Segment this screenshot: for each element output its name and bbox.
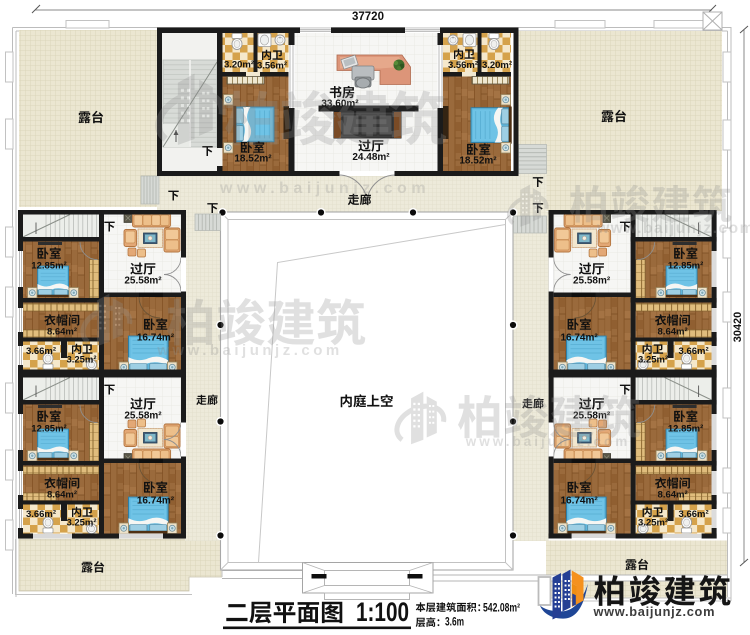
svg-text:542.08m²: 542.08m² xyxy=(483,603,520,615)
svg-text:18.52m²: 18.52m² xyxy=(234,154,272,165)
svg-text:25.58m²: 25.58m² xyxy=(124,276,162,287)
svg-text:18.52m²: 18.52m² xyxy=(459,156,497,167)
svg-text:3.25m²: 3.25m² xyxy=(638,518,668,529)
svg-text:37720: 37720 xyxy=(352,11,384,23)
svg-text:3.20m²: 3.20m² xyxy=(224,60,254,71)
svg-text:www.baijunjz.com: www.baijunjz.com xyxy=(465,434,631,449)
svg-text:3.66m²: 3.66m² xyxy=(26,346,56,357)
svg-text:3.25m²: 3.25m² xyxy=(66,518,96,529)
svg-text:12.85m²: 12.85m² xyxy=(668,261,703,272)
svg-text:www.baijunjz.com: www.baijunjz.com xyxy=(596,220,750,237)
svg-text:3.66m²: 3.66m² xyxy=(679,346,709,357)
svg-text:12.85m²: 12.85m² xyxy=(31,261,66,272)
svg-text:3.56m²: 3.56m² xyxy=(448,60,478,71)
svg-text:12.85m²: 12.85m² xyxy=(668,424,703,435)
svg-text:www.baijunjz.com: www.baijunjz.com xyxy=(219,180,430,197)
svg-text:24.48m²: 24.48m² xyxy=(352,152,390,163)
svg-text:3.25m²: 3.25m² xyxy=(638,355,668,366)
svg-text:3.20m²: 3.20m² xyxy=(482,60,512,71)
svg-text:www.baijunjz.com: www.baijunjz.com xyxy=(156,342,342,359)
svg-text:12.85m²: 12.85m² xyxy=(31,424,66,435)
svg-text:www.baijunjz.com: www.baijunjz.com xyxy=(593,604,716,619)
svg-text:3.66m²: 3.66m² xyxy=(26,509,56,520)
svg-text:3.25m²: 3.25m² xyxy=(66,355,96,366)
svg-text:16.74m²: 16.74m² xyxy=(560,496,598,507)
svg-text:16.74m²: 16.74m² xyxy=(137,496,175,507)
svg-text:1:100: 1:100 xyxy=(356,597,409,627)
svg-text:30420: 30420 xyxy=(732,312,744,343)
svg-text:16.74m²: 16.74m² xyxy=(560,333,598,344)
svg-text:8.64m²: 8.64m² xyxy=(658,327,688,338)
svg-text:25.58m²: 25.58m² xyxy=(573,276,611,287)
svg-text:3.56m²: 3.56m² xyxy=(257,61,287,72)
svg-text:8.64m²: 8.64m² xyxy=(47,327,77,338)
svg-text:25.58m²: 25.58m² xyxy=(124,411,162,422)
svg-text:3.6m: 3.6m xyxy=(445,617,464,629)
svg-text:3.66m²: 3.66m² xyxy=(679,509,709,520)
svg-text:8.64m²: 8.64m² xyxy=(47,490,77,501)
svg-text:8.64m²: 8.64m² xyxy=(658,490,688,501)
